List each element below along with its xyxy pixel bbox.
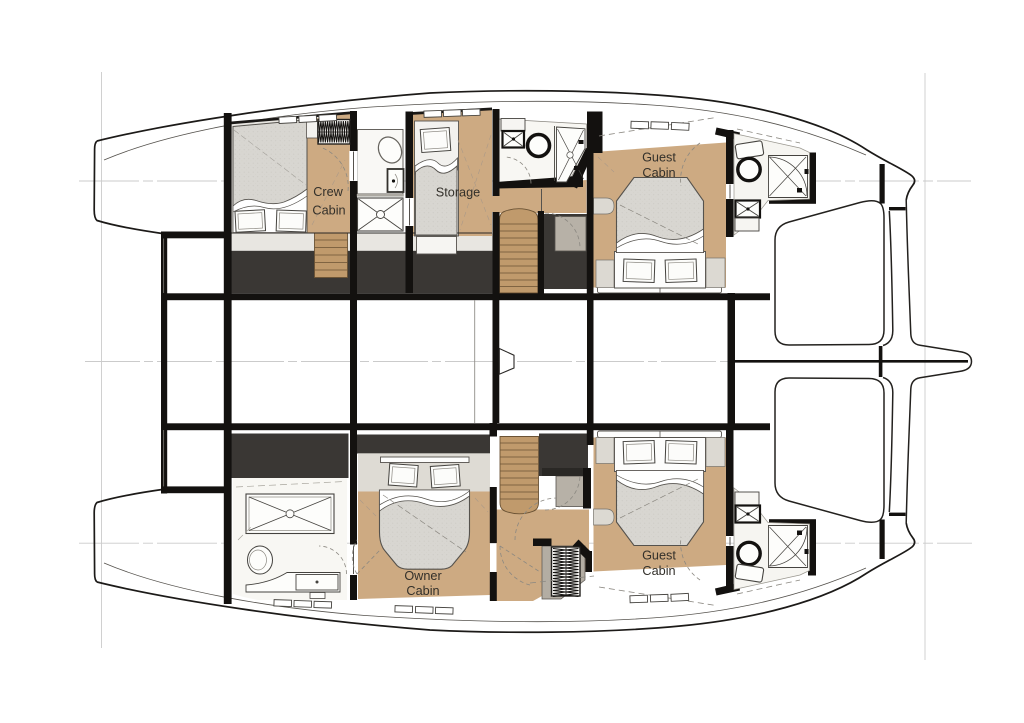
svg-text:Cabin: Cabin [312,204,345,218]
svg-text:Cabin: Cabin [642,564,675,578]
svg-text:Guest: Guest [642,151,676,165]
svg-text:Storage: Storage [436,186,480,200]
svg-text:Cabin: Cabin [642,166,675,180]
svg-text:Cabin: Cabin [406,584,439,598]
svg-text:Owner: Owner [404,569,442,583]
svg-text:Crew: Crew [313,185,343,199]
svg-text:Guest: Guest [642,549,676,563]
